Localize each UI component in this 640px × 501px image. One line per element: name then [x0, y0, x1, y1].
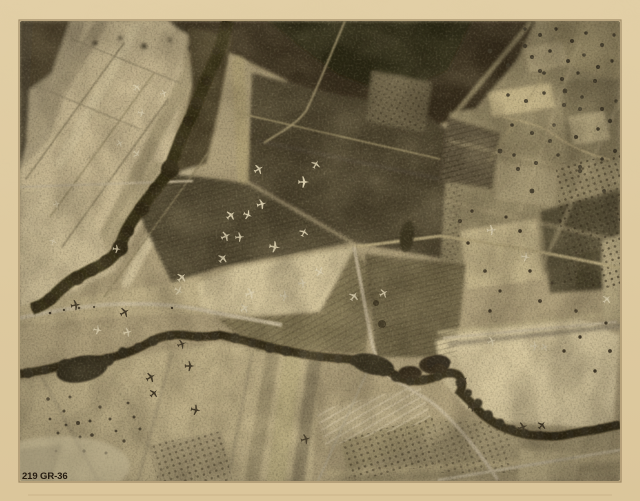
- svg-text:219 GR-36: 219 GR-36: [22, 471, 68, 482]
